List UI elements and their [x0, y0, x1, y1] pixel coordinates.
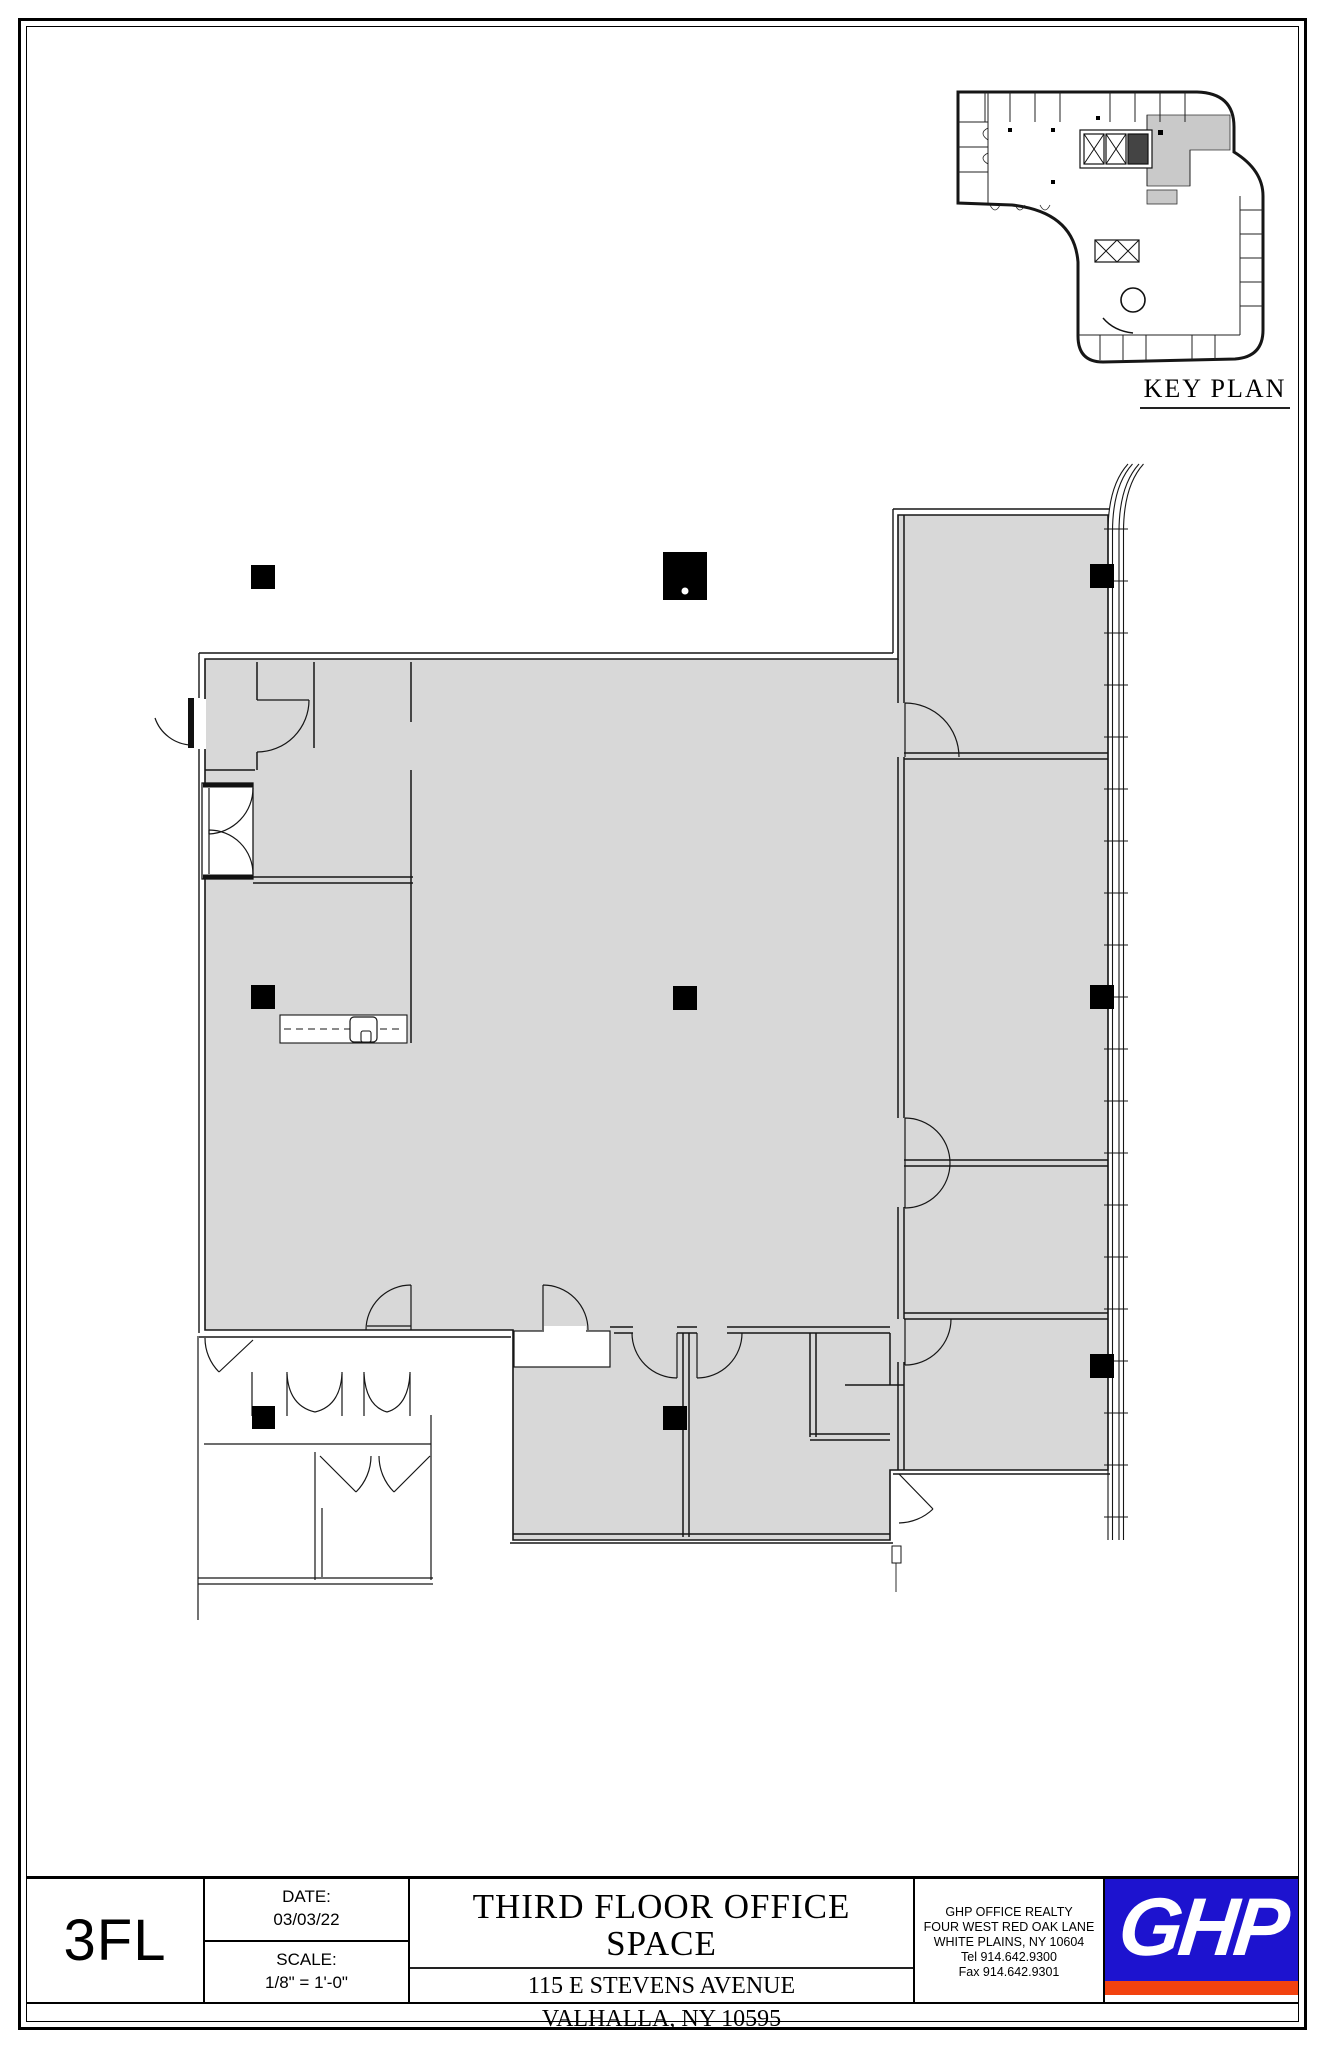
ghp-logo-red-bar — [1105, 1981, 1298, 1995]
floor-plan-millwork-desk — [280, 1015, 407, 1043]
ghp-logo-text: GHP — [1114, 1881, 1290, 1975]
key-plan-label: KEY PLAN — [1140, 374, 1290, 409]
key-plan-drawing — [945, 75, 1290, 375]
date-value: 03/03/22 — [273, 1909, 339, 1932]
project-cell: THIRD FLOOR OFFICE SPACE 115 E STEVENS A… — [410, 1879, 915, 2002]
firm-fax: Fax 914.642.9301 — [915, 1965, 1103, 1980]
firm-tel: Tel 914.642.9300 — [915, 1950, 1103, 1965]
firm-address-line1: FOUR WEST RED OAK LANE — [915, 1920, 1103, 1935]
project-address-line1: 115 E STEVENS AVENUE — [410, 1973, 913, 2000]
column-core-dot — [682, 588, 689, 595]
date-label: DATE: — [282, 1886, 331, 1909]
ghp-logo-blue-field: GHP — [1105, 1879, 1298, 1981]
floor-plan-lower-left-suite — [198, 1336, 433, 1620]
firm-info-cell: GHP OFFICE REALTY FOUR WEST RED OAK LANE… — [915, 1879, 1105, 2002]
drawing-sheet: KEY PLAN — [0, 0, 1325, 2048]
scale-label: SCALE: — [276, 1949, 336, 1972]
firm-address-line2: WHITE PLAINS, NY 10604 — [915, 1935, 1103, 1950]
scale-field: SCALE: 1/8" = 1'-0" — [205, 1942, 408, 2003]
date-scale-cell: DATE: 03/03/22 SCALE: 1/8" = 1'-0" — [205, 1879, 410, 2002]
firm-name: GHP OFFICE REALTY — [915, 1905, 1103, 1920]
project-address-line2: VALHALLA, NY 10595 — [410, 2006, 913, 2033]
ghp-logo: GHP — [1105, 1879, 1298, 2002]
floor-plan-drawing — [150, 420, 1210, 1650]
scale-value: 1/8" = 1'-0" — [265, 1972, 348, 1995]
project-title: THIRD FLOOR OFFICE SPACE — [410, 1889, 913, 1969]
date-field: DATE: 03/03/22 — [205, 1879, 408, 1942]
ghp-logo-gap — [1105, 1995, 1298, 2002]
floor-code: 3FL — [27, 1879, 205, 2002]
title-block: 3FL DATE: 03/03/22 SCALE: 1/8" = 1'-0" T… — [27, 1876, 1298, 2004]
